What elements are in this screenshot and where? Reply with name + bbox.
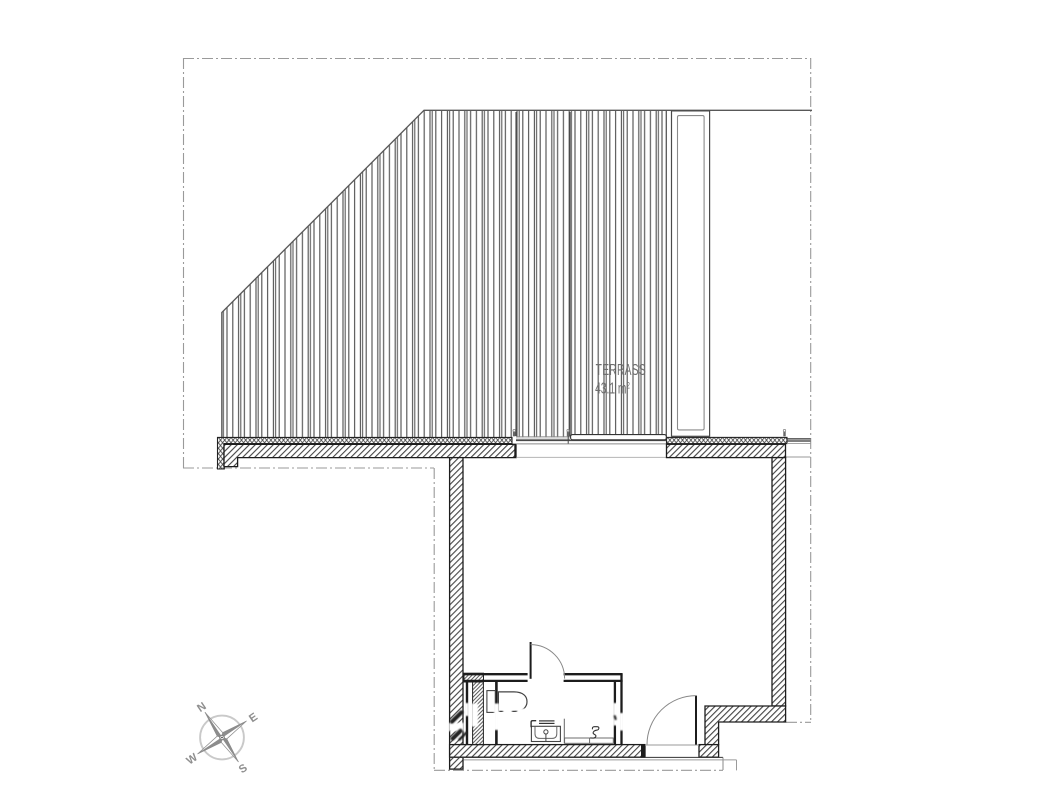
svg-text:43.1 m2: 43.1 m2 [595, 380, 630, 398]
svg-text:TERRASS: TERRASS [596, 361, 646, 379]
